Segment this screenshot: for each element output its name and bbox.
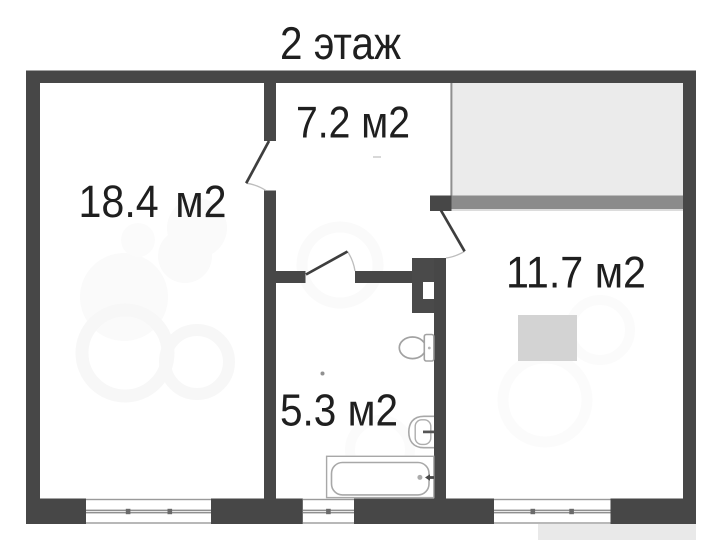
svg-text:5.3 м2: 5.3 м2 [280,385,398,436]
svg-text:2 этаж: 2 этаж [280,17,401,69]
svg-text:18.4 м2: 18.4 м2 [78,176,226,227]
svg-text:7.2 м2: 7.2 м2 [296,99,410,148]
svg-text:11.7 м2: 11.7 м2 [506,249,646,298]
